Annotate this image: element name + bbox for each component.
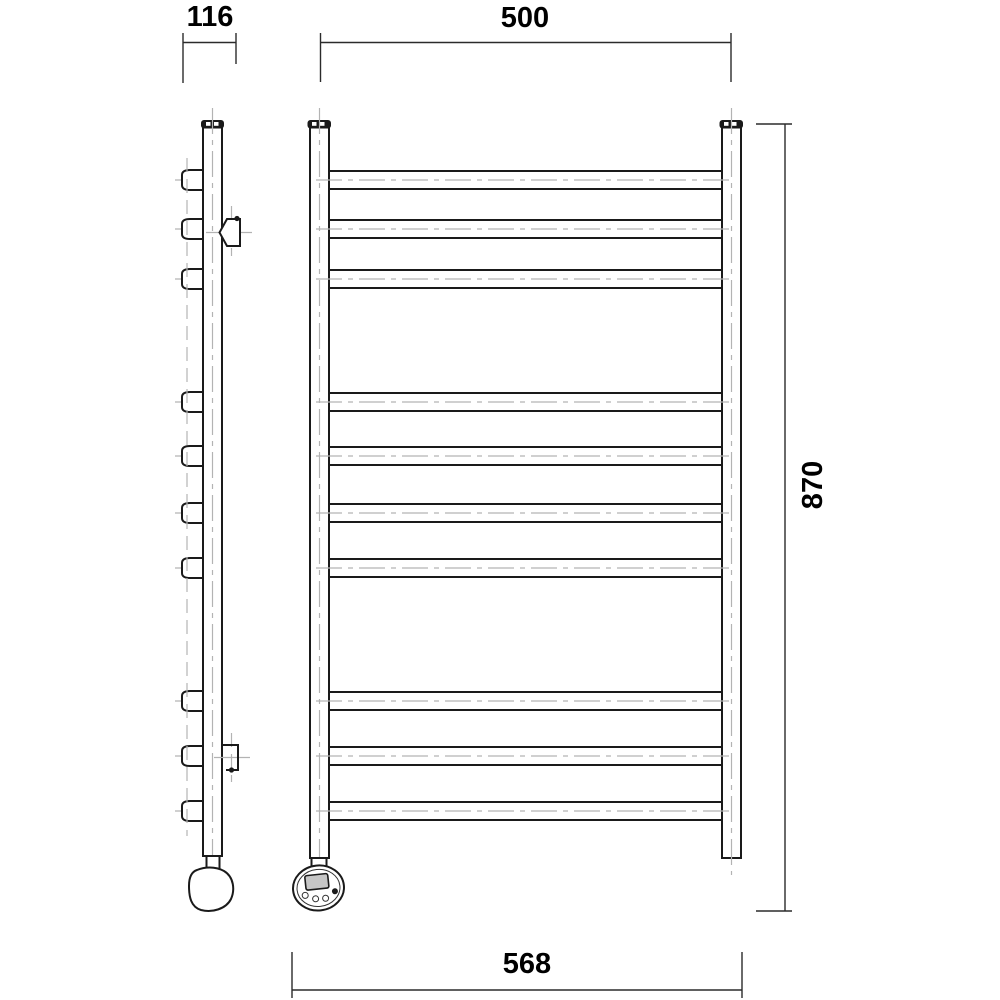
heating-element-knob	[189, 868, 233, 911]
thermostat-display	[305, 873, 329, 890]
dimension-overall-width-label: 568	[503, 948, 551, 980]
side-rungs	[182, 170, 204, 821]
dimension-height-870: 870	[756, 124, 829, 911]
side-rung	[182, 746, 204, 766]
side-rung	[182, 691, 204, 711]
thermostat	[291, 863, 346, 913]
side-rung	[182, 392, 204, 412]
towel-rail-technical-drawing: 116 500 870 568	[0, 0, 1000, 1000]
side-view	[175, 108, 252, 911]
bracket-screw-dot	[234, 216, 239, 221]
side-rung	[182, 446, 204, 466]
drawing-sheet: 116 500 870 568	[0, 0, 1000, 1000]
front-view	[291, 108, 743, 913]
dimension-height-label: 870	[797, 461, 829, 509]
front-left-tube	[310, 127, 329, 858]
dimension-overall-width-568: 568	[292, 948, 742, 998]
front-rungs	[326, 171, 724, 820]
side-rung	[182, 170, 204, 190]
dimension-depth-label: 116	[187, 1, 234, 33]
dimension-depth-116: 116	[183, 1, 236, 83]
side-rung	[182, 801, 204, 821]
side-rung	[182, 503, 204, 523]
bracket-screw-dot	[229, 767, 234, 772]
front-right-tube	[722, 127, 741, 858]
dimension-center-width-500: 500	[321, 2, 732, 82]
side-rung	[182, 269, 204, 289]
dimension-center-width-label: 500	[501, 2, 549, 34]
side-rung	[182, 219, 204, 239]
side-rung	[182, 558, 204, 578]
